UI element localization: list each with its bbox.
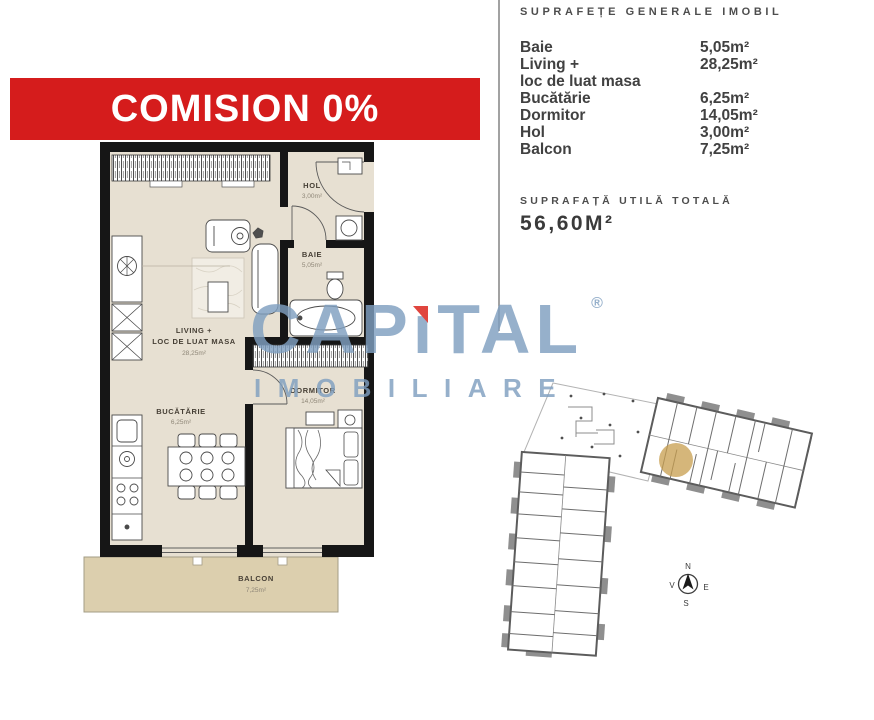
room-label: Bucătărie — [520, 90, 700, 107]
svg-text:28,25m²: 28,25m² — [182, 350, 207, 357]
table-row: Balcon 7,25m² — [520, 141, 870, 158]
room-label: loc de luat masa — [520, 73, 700, 90]
bedroom-shelf — [306, 412, 334, 425]
areas-panel: SUPRAFEȚE GENERALE IMOBIL Baie 5,05m² Li… — [520, 0, 870, 236]
total-area-value: 56,60M² — [520, 212, 870, 236]
label-baie: BAIE — [302, 250, 322, 259]
dining-set — [168, 434, 245, 499]
svg-text:7,25m²: 7,25m² — [246, 587, 267, 594]
svg-text:LOC DE LUAT MASA: LOC DE LUAT MASA — [152, 337, 236, 346]
sofa — [252, 244, 278, 314]
commission-banner: COMISION 0% — [10, 78, 480, 140]
bedroom-desk — [338, 410, 362, 430]
compass-icon: N S V E — [669, 562, 708, 608]
stove-burner — [117, 484, 125, 492]
label-bucatarie: BUCĂTĂRIE — [156, 407, 206, 416]
apartment-floor-plan: HOL 3,00m² BAIE 5,05m² LIVING + LOC DE L… — [84, 142, 374, 612]
room-area-value: 28,25m² — [700, 56, 758, 73]
svg-text:3,00m²: 3,00m² — [302, 193, 323, 200]
label-dormitor: DORMITOR — [290, 386, 336, 395]
total-area-block: SUPRAFAȚĂ UTILĂ TOTALĂ 56,60M² — [520, 195, 870, 236]
bedroom-wardrobe — [253, 345, 368, 367]
table-row: Bucătărie 6,25m² — [520, 90, 870, 107]
room-label: Hol — [520, 124, 700, 141]
balcony — [84, 557, 338, 612]
room-area-value: 5,05m² — [700, 39, 749, 56]
table-row: Baie 5,05m² — [520, 39, 870, 56]
areas-panel-title: SUPRAFEȚE GENERALE IMOBIL — [520, 6, 870, 18]
room-area-value: 14,05m² — [700, 107, 758, 124]
room-label: Dormitor — [520, 107, 700, 124]
svg-text:5,05m²: 5,05m² — [302, 262, 323, 269]
table-row: Hol 3,00m² — [520, 124, 870, 141]
svg-text:6,25m²: 6,25m² — [171, 419, 192, 426]
compass-south: S — [683, 599, 688, 608]
compass-north: N — [685, 562, 691, 571]
coffee-table — [208, 282, 228, 312]
svg-text:14,05m²: 14,05m² — [301, 398, 326, 405]
compass-west: V — [669, 581, 675, 590]
room-area-value: 6,25m² — [700, 90, 749, 107]
pillow — [344, 460, 358, 485]
compass-east: E — [703, 583, 708, 592]
table-row: Living + 28,25m² — [520, 56, 870, 73]
table-row: loc de luat masa — [520, 73, 870, 90]
commission-banner-text: COMISION 0% — [111, 88, 380, 131]
label-balcon: BALCON — [238, 574, 274, 583]
room-area-value: 3,00m² — [700, 124, 749, 141]
building-site-plan: N S V E — [501, 383, 815, 661]
label-hol: HOL — [303, 181, 321, 190]
listing-image: HOL 3,00m² BAIE 5,05m² LIVING + LOC DE L… — [0, 0, 874, 720]
table-row: Dormitor 14,05m² — [520, 107, 870, 124]
building-wing-left — [501, 452, 617, 662]
room-area-value: 7,25m² — [700, 141, 749, 158]
room-label: Balcon — [520, 141, 700, 158]
areas-table: Baie 5,05m² Living + 28,25m² loc de luat… — [520, 39, 870, 158]
room-label: Baie — [520, 39, 700, 56]
total-area-label: SUPRAFAȚĂ UTILĂ TOTALĂ — [520, 195, 870, 207]
label-living: LIVING + — [176, 326, 212, 335]
apartment-highlight — [659, 443, 693, 477]
room-label: Living + — [520, 56, 700, 73]
toilet — [327, 272, 343, 279]
chair — [178, 434, 195, 447]
pillow — [344, 432, 358, 457]
